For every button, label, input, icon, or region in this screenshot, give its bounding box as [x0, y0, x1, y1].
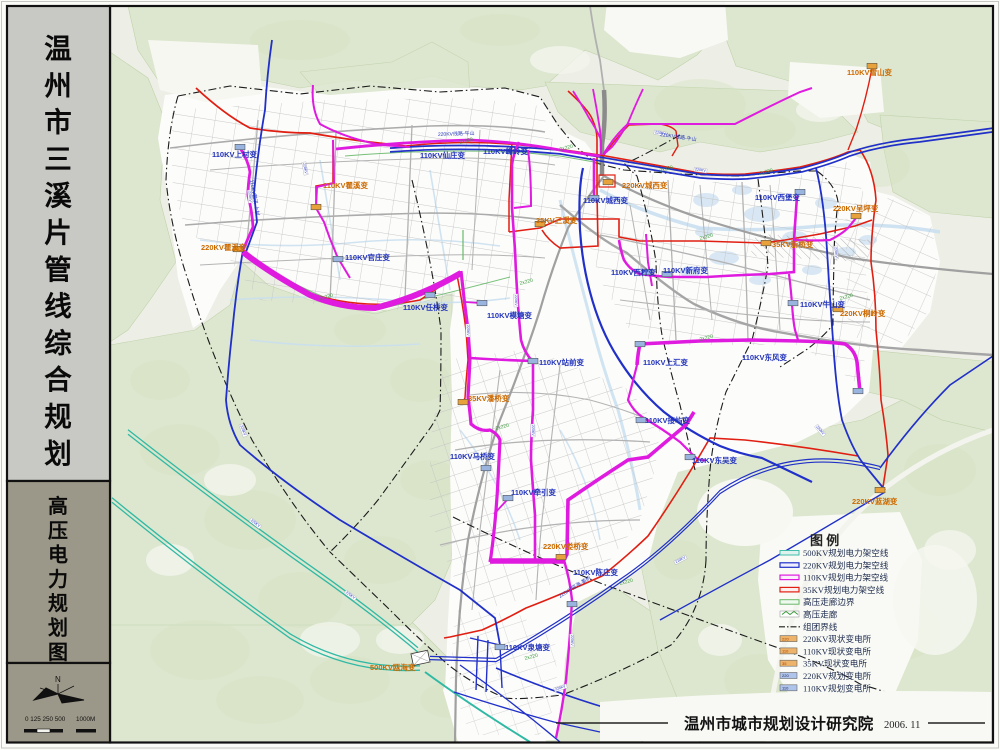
- svg-text:220KV规划电力架空线: 220KV规划电力架空线: [803, 559, 889, 570]
- svg-text:500KV瓯海变: 500KV瓯海变: [370, 662, 416, 672]
- svg-text:管: 管: [44, 254, 72, 285]
- svg-text:110KV新府变: 110KV新府变: [663, 265, 709, 275]
- svg-text:110: 110: [782, 686, 789, 691]
- svg-text:组团界线: 组团界线: [803, 621, 838, 632]
- svg-text:110KV官庄变: 110KV官庄变: [345, 252, 391, 262]
- svg-text:力: 力: [48, 568, 68, 591]
- svg-text:220KV: 220KV: [570, 635, 574, 647]
- svg-text:110KV上村变: 110KV上村变: [212, 149, 258, 159]
- svg-text:1000M: 1000M: [76, 716, 95, 723]
- svg-text:110KV峰岭变: 110KV峰岭变: [483, 146, 529, 156]
- svg-text:压: 压: [48, 520, 68, 542]
- svg-text:高压走廊边界: 高压走廊边界: [803, 596, 855, 607]
- svg-text:规: 规: [44, 401, 72, 432]
- svg-text:220KV娄桥变: 220KV娄桥变: [543, 541, 589, 551]
- svg-text:110KV接屿变: 110KV接屿变: [645, 415, 691, 425]
- svg-text:线: 线: [44, 291, 72, 322]
- svg-text:110KV仙庄变: 110KV仙庄变: [420, 150, 466, 160]
- svg-text:110KV牵引变: 110KV牵引变: [511, 487, 557, 497]
- svg-text:110KV规划变电所: 110KV规划变电所: [803, 682, 871, 693]
- svg-text:110KV陈庄变: 110KV陈庄变: [573, 567, 619, 577]
- svg-text:高压走廊: 高压走廊: [803, 609, 838, 620]
- svg-text:220KV线路-牛山: 220KV线路-牛山: [438, 130, 475, 138]
- svg-text:电: 电: [48, 544, 68, 567]
- svg-text:220KV: 220KV: [466, 325, 470, 337]
- svg-text:35KV规划电力架空线: 35KV规划电力架空线: [803, 584, 885, 595]
- svg-text:110KV西堡变: 110KV西堡变: [755, 192, 801, 202]
- svg-text:110KV瞿溪变: 110KV瞿溪变: [323, 180, 369, 190]
- svg-text:110KV现状变电所: 110KV现状变电所: [803, 645, 871, 656]
- svg-text:110KV西柠变: 110KV西柠变: [611, 267, 657, 277]
- svg-text:综: 综: [44, 327, 72, 358]
- svg-text:110KV泉塘变: 110KV泉塘变: [505, 642, 551, 652]
- svg-text:110KV东风变: 110KV东风变: [742, 352, 788, 362]
- svg-text:220: 220: [782, 636, 789, 641]
- svg-text:220: 220: [782, 673, 789, 678]
- svg-text:220KV规划变电所: 220KV规划变电所: [803, 670, 872, 681]
- svg-text:110KV城西变: 110KV城西变: [583, 195, 629, 205]
- svg-text:划: 划: [48, 617, 68, 640]
- svg-text:划: 划: [44, 438, 72, 469]
- svg-text:三: 三: [44, 143, 72, 174]
- svg-text:图 例: 图 例: [810, 533, 839, 548]
- svg-text:35KV三溪变: 35KV三溪变: [536, 215, 578, 225]
- svg-text:温: 温: [44, 33, 72, 64]
- svg-text:110KV任桥变: 110KV任桥变: [403, 302, 449, 312]
- svg-text:35: 35: [782, 661, 787, 666]
- svg-text:110KV上汇变: 110KV上汇变: [643, 357, 689, 367]
- svg-text:2006. 11: 2006. 11: [884, 720, 920, 731]
- svg-text:市: 市: [44, 107, 72, 138]
- svg-text:溪: 溪: [44, 180, 72, 211]
- svg-text:220KV: 220KV: [514, 295, 518, 307]
- svg-text:110KV模塘变: 110KV模塘变: [487, 310, 533, 320]
- svg-text:110: 110: [782, 649, 789, 654]
- svg-text:220KV城西变: 220KV城西变: [622, 180, 668, 190]
- svg-text:高: 高: [48, 494, 68, 518]
- svg-text:35KV现状变电所: 35KV现状变电所: [803, 658, 867, 669]
- svg-text:合: 合: [44, 364, 72, 395]
- svg-text:图: 图: [48, 641, 68, 664]
- svg-text:规: 规: [48, 592, 68, 615]
- svg-text:110KV雪山变: 110KV雪山变: [847, 67, 893, 77]
- svg-text:州: 州: [44, 70, 72, 101]
- svg-text:温州市城市规划设计研究院: 温州市城市规划设计研究院: [684, 714, 874, 733]
- svg-text:N: N: [55, 675, 61, 684]
- svg-text:110KV牛山变: 110KV牛山变: [800, 299, 846, 309]
- svg-text:220KV: 220KV: [531, 425, 535, 437]
- svg-text:片: 片: [44, 217, 72, 248]
- svg-text:110KV规划电力架空线: 110KV规划电力架空线: [803, 572, 889, 583]
- svg-text:110KV东吴变: 110KV东吴变: [692, 455, 738, 465]
- svg-text:35KV潘桥变: 35KV潘桥变: [468, 393, 510, 403]
- svg-text:0 125 250 500: 0 125 250 500: [25, 716, 66, 723]
- svg-text:35KV新桥变: 35KV新桥变: [772, 239, 814, 249]
- svg-text:110KV马桥变: 110KV马桥变: [450, 451, 496, 461]
- svg-text:500KV规划电力架空线: 500KV规划电力架空线: [803, 547, 889, 558]
- svg-text:220KV现状变电所: 220KV现状变电所: [803, 633, 872, 644]
- svg-text:220KV桐岭变: 220KV桐岭变: [840, 308, 886, 318]
- svg-text:110KV站前变: 110KV站前变: [539, 357, 585, 367]
- svg-text:220KV蓝湖变: 220KV蓝湖变: [852, 496, 898, 506]
- svg-text:220KV瞿溪变: 220KV瞿溪变: [201, 242, 247, 252]
- svg-text:220KV呈坪变: 220KV呈坪变: [833, 203, 879, 213]
